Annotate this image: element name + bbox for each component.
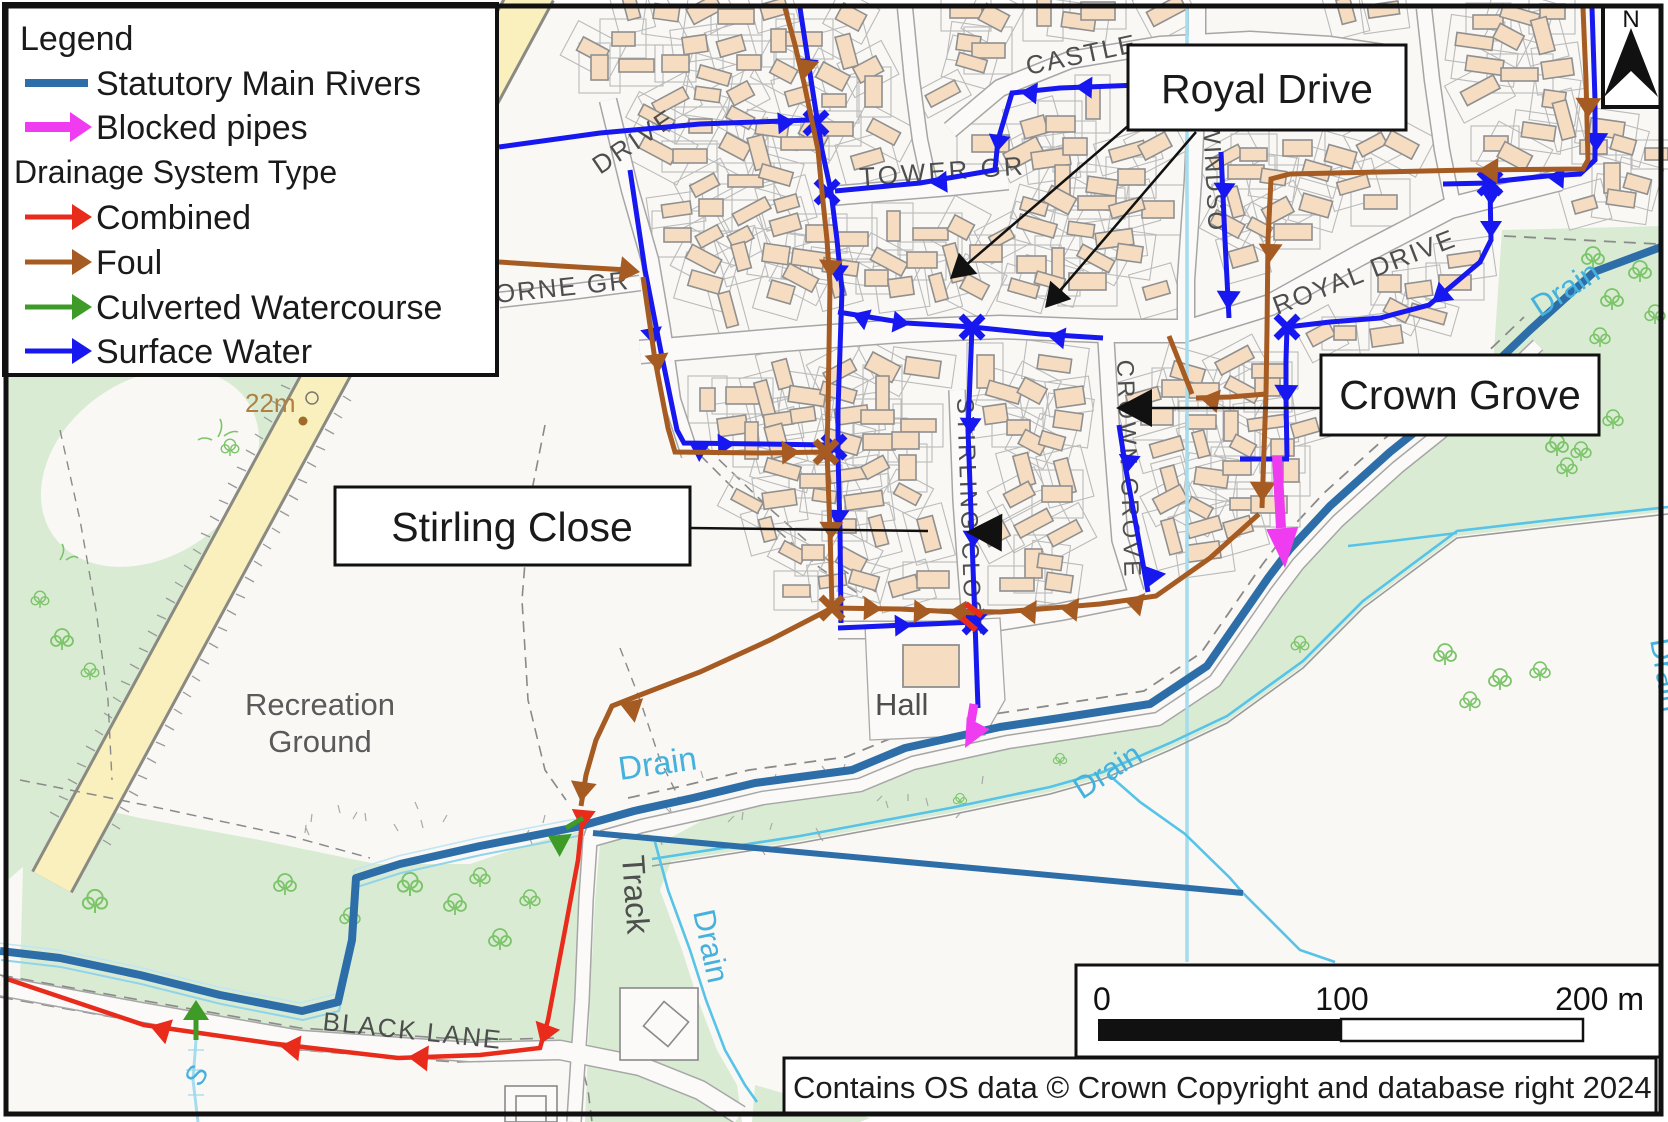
svg-text:Crown Grove: Crown Grove [1339, 372, 1581, 418]
svg-text:Drainage System Type: Drainage System Type [14, 154, 337, 190]
svg-text:200 m: 200 m [1555, 981, 1644, 1017]
svg-text:Stirling Close: Stirling Close [391, 504, 633, 550]
svg-text:Contains OS data © Crown Copyr: Contains OS data © Crown Copyright and d… [793, 1070, 1652, 1105]
svg-text:0: 0 [1093, 981, 1111, 1017]
svg-text:Statutory Main Rivers: Statutory Main Rivers [96, 65, 421, 103]
svg-text:Recreation: Recreation [245, 687, 395, 722]
svg-text:Legend: Legend [20, 20, 133, 58]
svg-text:Hall: Hall [875, 687, 928, 722]
svg-text:Foul: Foul [96, 244, 162, 282]
svg-text:Track: Track [615, 854, 656, 936]
svg-text:Surface Water: Surface Water [96, 333, 312, 371]
svg-text:Ground: Ground [268, 724, 371, 759]
svg-text:100: 100 [1315, 981, 1368, 1017]
svg-text:Royal Drive: Royal Drive [1161, 66, 1373, 112]
svg-text:Culverted Watercourse: Culverted Watercourse [96, 289, 442, 327]
svg-text:22m: 22m [245, 388, 296, 418]
svg-text:Blocked pipes: Blocked pipes [96, 109, 308, 147]
svg-text:Combined: Combined [96, 199, 251, 237]
